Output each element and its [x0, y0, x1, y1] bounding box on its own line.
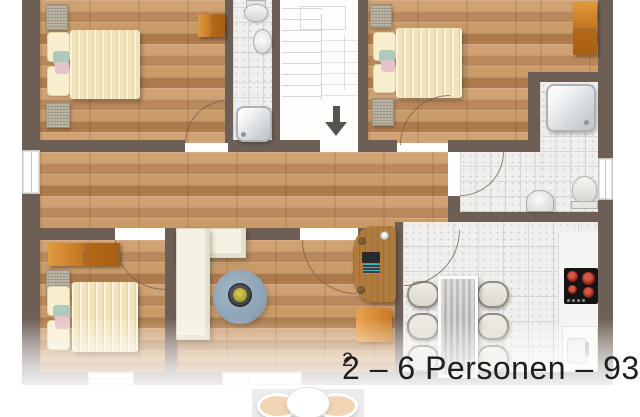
bedside-mat: [46, 4, 68, 30]
stove-knob: [577, 299, 580, 302]
toilet: [571, 201, 598, 209]
bedside-mat: [372, 98, 394, 126]
double-bed-duvet: [396, 28, 462, 98]
bedside-mat: [370, 4, 392, 28]
shower: [546, 84, 596, 132]
window: [598, 158, 613, 200]
stairwell-entry: [320, 140, 358, 152]
down-arrow-icon: [325, 122, 347, 136]
cup: [380, 231, 389, 240]
burner: [568, 285, 577, 294]
desk-item: [357, 286, 365, 294]
caption-superscript: 2: [342, 349, 354, 372]
wardrobe: [198, 14, 225, 37]
wall-segment: [460, 212, 613, 222]
laptop: [362, 252, 380, 263]
wall-segment: [528, 72, 540, 152]
wall-segment: [448, 196, 460, 222]
stair-treads-dashed: [322, 40, 358, 100]
stove-knob: [572, 299, 575, 302]
hallway-floor: [40, 152, 448, 228]
washbasin: [526, 190, 554, 212]
wall-segment: [272, 0, 280, 143]
wall-segment: [22, 140, 185, 152]
burner: [582, 272, 595, 285]
plant: [233, 288, 247, 302]
shower-drain: [584, 120, 589, 125]
stove-knob: [582, 299, 585, 302]
down-arrow-icon: [333, 106, 340, 123]
double-bed-duvet: [70, 30, 140, 99]
lower-floor-table: [286, 387, 330, 417]
stair-direction-line: [344, 34, 345, 90]
wall-segment: [22, 228, 115, 240]
wall-segment: [540, 72, 598, 82]
shower-drain: [241, 132, 246, 137]
burner: [583, 287, 594, 298]
bedside-mat: [46, 102, 70, 128]
desk-item: [358, 237, 366, 245]
wall-segment: [358, 140, 397, 152]
toilet: [572, 176, 597, 203]
toilet: [244, 4, 268, 22]
stove-knob: [567, 299, 570, 302]
washbasin: [253, 29, 272, 54]
wall-segment: [358, 0, 368, 143]
wardrobe: [573, 2, 597, 55]
stair-divider: [321, 14, 322, 100]
wardrobe: [48, 243, 120, 266]
dining-chair: [477, 281, 509, 308]
cushion: [55, 62, 69, 74]
floor-plan-image: 2 – 6 Personen – 93 m2: [0, 0, 640, 417]
window: [22, 150, 40, 194]
cushion: [381, 60, 395, 72]
laptop: [363, 264, 380, 274]
stair-landing: [300, 6, 346, 30]
caption-text: 2 – 6 Personen – 93 m: [342, 350, 640, 387]
wall-segment: [448, 140, 528, 152]
burner: [567, 271, 578, 282]
